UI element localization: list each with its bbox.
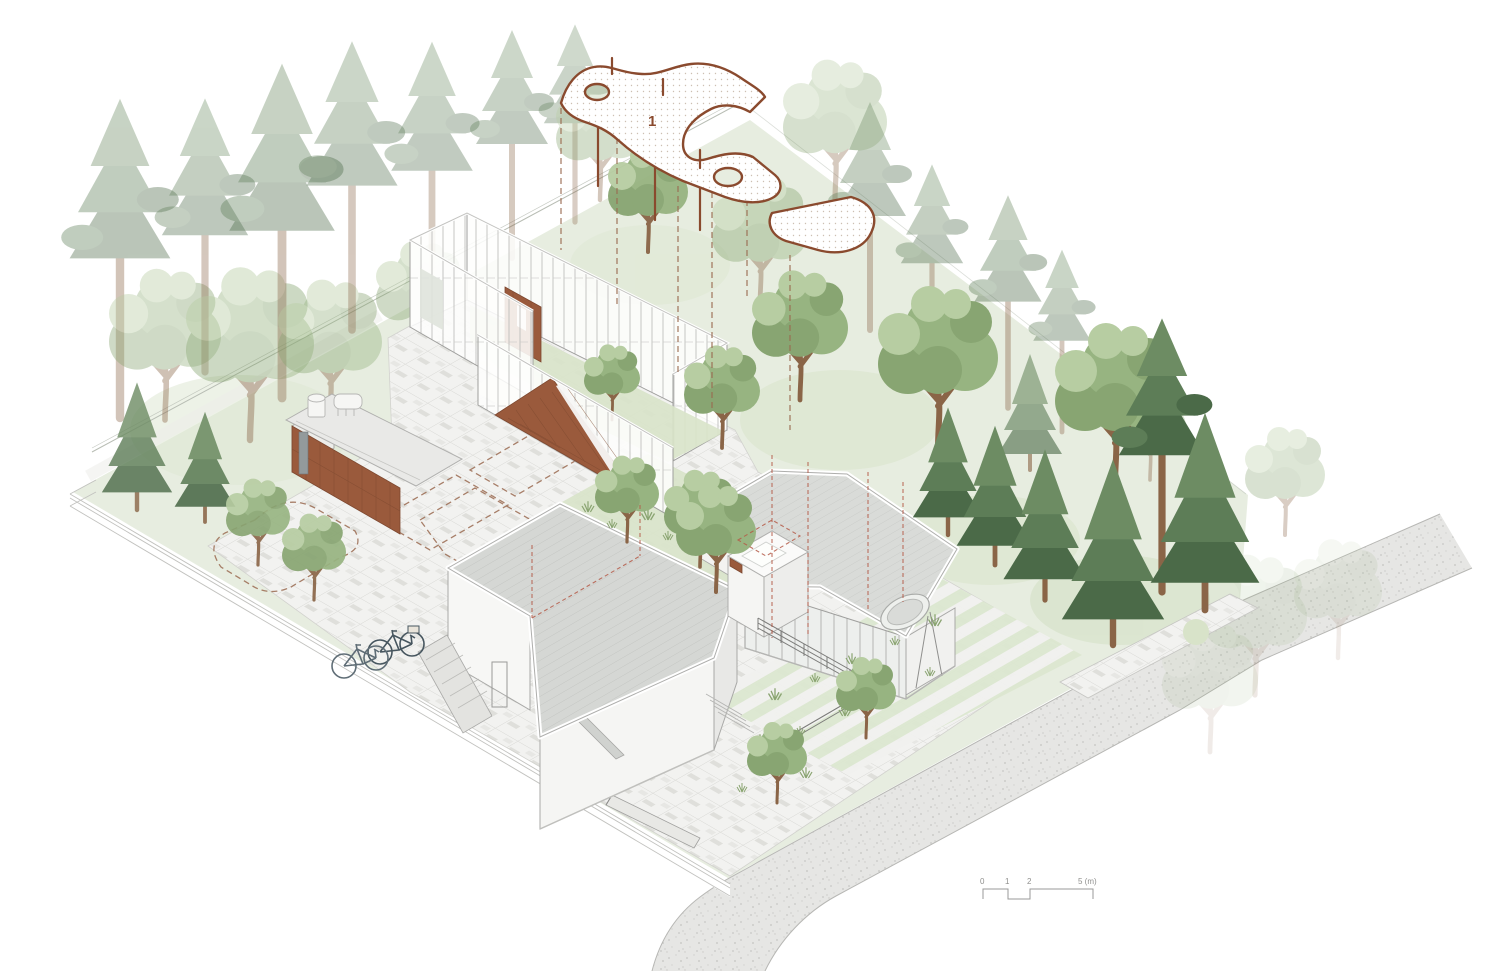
- tree: [1245, 427, 1325, 535]
- axonometric-canvas: 1 0 1 2 5 (m): [0, 0, 1500, 971]
- tree-pit: [1183, 619, 1209, 645]
- scale-bar-shape: [983, 889, 1093, 899]
- scale-bar: 0 1 2 5 (m): [980, 877, 1097, 899]
- scale-tick-5m: 5 (m): [1078, 877, 1097, 886]
- site-plan-drawing: 1 0 1 2 5 (m): [0, 0, 1500, 971]
- kiosk-door: [299, 432, 308, 474]
- scale-tick-2: 2: [1027, 877, 1032, 886]
- scale-tick-0: 0: [980, 877, 985, 886]
- roof-plan-number-label: 1: [648, 113, 656, 130]
- scale-tick-1: 1: [1005, 877, 1010, 886]
